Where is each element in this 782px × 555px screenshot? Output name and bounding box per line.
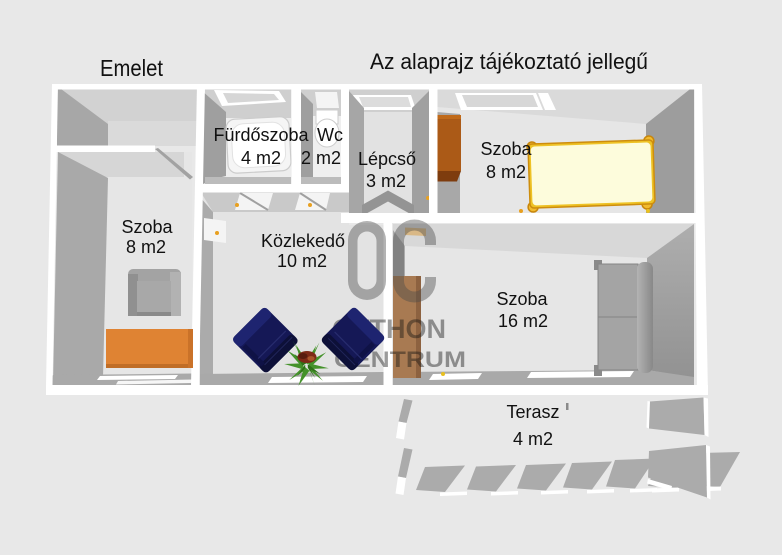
svg-text:Az alaprajz tájékoztató jelleg: Az alaprajz tájékoztató jellegű: [370, 49, 648, 74]
svg-text:8 m2: 8 m2: [126, 237, 166, 257]
svg-text:16 m2: 16 m2: [498, 311, 548, 331]
svg-text:10 m2: 10 m2: [277, 251, 327, 271]
svg-text:4 m2: 4 m2: [241, 148, 281, 168]
svg-text:Fürdőszoba: Fürdőszoba: [213, 125, 309, 145]
svg-text:8 m2: 8 m2: [486, 162, 526, 182]
svg-text:Szoba: Szoba: [496, 289, 548, 309]
svg-text:3 m2: 3 m2: [366, 171, 406, 191]
svg-text:Szoba: Szoba: [121, 217, 173, 237]
svg-text:Emelet: Emelet: [100, 55, 163, 81]
svg-text:Lépcső: Lépcső: [358, 149, 416, 169]
svg-text:2 m2: 2 m2: [301, 148, 341, 168]
svg-text:Közlekedő: Közlekedő: [261, 231, 345, 251]
svg-text:Szoba: Szoba: [480, 139, 532, 159]
svg-text:Wc: Wc: [317, 125, 343, 145]
svg-text:4 m2: 4 m2: [513, 429, 553, 449]
svg-text:Terasz: Terasz: [506, 402, 559, 422]
